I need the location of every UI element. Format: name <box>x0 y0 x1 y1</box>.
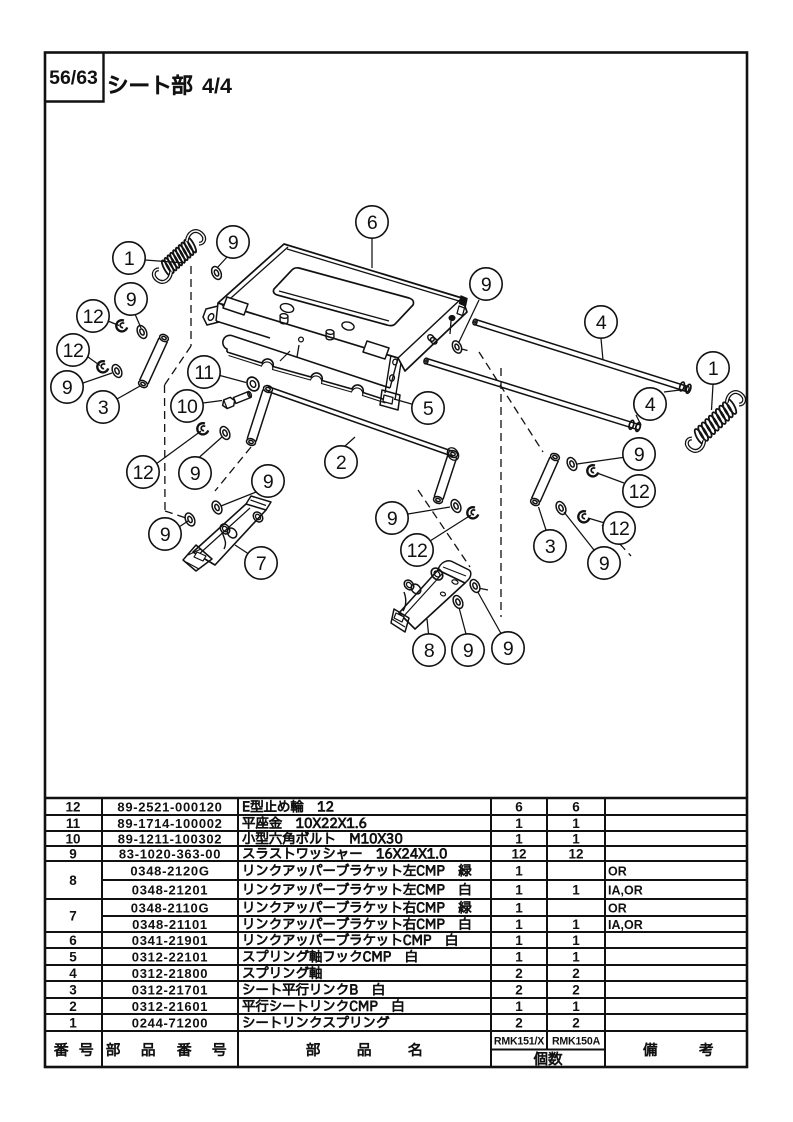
svg-text:1: 1 <box>515 917 523 932</box>
svg-text:12: 12 <box>407 540 428 562</box>
svg-text:1: 1 <box>572 933 580 948</box>
svg-text:12: 12 <box>609 518 630 540</box>
svg-text:8: 8 <box>69 873 77 888</box>
svg-text:IA,OR: IA,OR <box>608 883 643 897</box>
svg-text:89-1714-100002: 89-1714-100002 <box>117 816 222 831</box>
svg-text:2: 2 <box>572 1015 580 1030</box>
svg-text:OR: OR <box>608 864 627 878</box>
svg-text:0348-2120G: 0348-2120G <box>130 863 209 878</box>
svg-text:12: 12 <box>511 846 526 861</box>
svg-text:2: 2 <box>572 982 580 997</box>
svg-text:1: 1 <box>572 917 580 932</box>
svg-text:6: 6 <box>572 799 580 814</box>
svg-text:3: 3 <box>98 397 108 419</box>
svg-text:1: 1 <box>572 882 580 897</box>
svg-text:1: 1 <box>572 831 580 846</box>
svg-text:RMK150A: RMK150A <box>552 1036 601 1048</box>
svg-text:12: 12 <box>629 481 650 503</box>
svg-text:1: 1 <box>515 816 523 831</box>
svg-text:1: 1 <box>515 863 523 878</box>
svg-text:1: 1 <box>515 900 523 915</box>
svg-text:12: 12 <box>63 340 84 362</box>
svg-text:4/4: 4/4 <box>202 74 232 98</box>
svg-text:0348-21201: 0348-21201 <box>132 882 208 897</box>
svg-text:0348-21101: 0348-21101 <box>132 917 208 932</box>
svg-text:2: 2 <box>515 1015 523 1030</box>
svg-text:1: 1 <box>572 999 580 1014</box>
svg-text:0244-71200: 0244-71200 <box>132 1015 208 1030</box>
svg-text:4: 4 <box>596 312 607 334</box>
svg-text:12: 12 <box>133 462 154 484</box>
svg-text:3: 3 <box>69 982 77 997</box>
svg-text:1: 1 <box>124 248 134 270</box>
svg-text:2: 2 <box>336 452 346 474</box>
svg-text:89-2521-000120: 89-2521-000120 <box>117 799 222 814</box>
svg-text:0341-21901: 0341-21901 <box>132 933 208 948</box>
svg-text:9: 9 <box>463 640 473 662</box>
svg-text:9: 9 <box>634 444 644 466</box>
svg-text:OR: OR <box>608 901 627 915</box>
svg-text:89-1211-100302: 89-1211-100302 <box>118 831 223 846</box>
svg-text:56/63: 56/63 <box>49 67 98 89</box>
svg-text:9: 9 <box>69 846 77 861</box>
svg-text:9: 9 <box>126 289 136 311</box>
svg-text:0312-21800: 0312-21800 <box>132 966 208 981</box>
svg-text:6: 6 <box>515 799 523 814</box>
svg-text:7: 7 <box>256 553 266 575</box>
svg-text:0312-21601: 0312-21601 <box>132 999 208 1014</box>
svg-text:9: 9 <box>481 274 491 296</box>
svg-text:9: 9 <box>228 232 238 254</box>
svg-text:2: 2 <box>515 982 523 997</box>
svg-text:9: 9 <box>160 524 170 546</box>
svg-text:2: 2 <box>69 999 77 1014</box>
svg-text:5: 5 <box>69 949 77 964</box>
svg-text:3: 3 <box>545 536 555 558</box>
svg-text:4: 4 <box>645 394 656 416</box>
svg-text:12: 12 <box>568 846 583 861</box>
svg-text:RMK151/X: RMK151/X <box>494 1036 544 1048</box>
svg-text:6: 6 <box>367 212 377 234</box>
svg-text:11: 11 <box>194 362 213 384</box>
svg-text:1: 1 <box>708 358 718 380</box>
svg-text:1: 1 <box>515 882 523 897</box>
svg-text:0312-21701: 0312-21701 <box>132 982 208 997</box>
svg-text:0348-2110G: 0348-2110G <box>131 900 210 915</box>
svg-text:10: 10 <box>177 396 198 418</box>
svg-text:4: 4 <box>69 966 77 981</box>
svg-text:1: 1 <box>515 831 523 846</box>
svg-text:1: 1 <box>572 949 580 964</box>
svg-text:2: 2 <box>572 966 580 981</box>
svg-text:9: 9 <box>190 463 200 485</box>
svg-text:9: 9 <box>599 553 609 575</box>
svg-text:1: 1 <box>69 1015 77 1030</box>
svg-text:1: 1 <box>515 949 523 964</box>
svg-text:11: 11 <box>66 816 81 831</box>
svg-text:6: 6 <box>69 933 77 948</box>
svg-text:1: 1 <box>515 999 523 1014</box>
svg-text:0312-22101: 0312-22101 <box>132 949 208 964</box>
svg-text:83-1020-363-00: 83-1020-363-00 <box>119 846 221 861</box>
svg-text:5: 5 <box>423 398 434 420</box>
svg-text:2: 2 <box>515 966 523 981</box>
svg-text:1: 1 <box>515 933 523 948</box>
svg-text:9: 9 <box>387 508 397 530</box>
svg-text:8: 8 <box>424 640 434 662</box>
svg-text:7: 7 <box>69 909 77 924</box>
svg-text:12: 12 <box>83 306 104 328</box>
svg-text:9: 9 <box>503 638 513 660</box>
svg-text:12: 12 <box>65 799 80 814</box>
svg-text:1: 1 <box>572 816 580 831</box>
svg-text:10: 10 <box>65 831 80 846</box>
svg-text:IA,OR: IA,OR <box>608 918 643 932</box>
svg-text:9: 9 <box>263 471 273 493</box>
svg-text:9: 9 <box>62 377 72 399</box>
